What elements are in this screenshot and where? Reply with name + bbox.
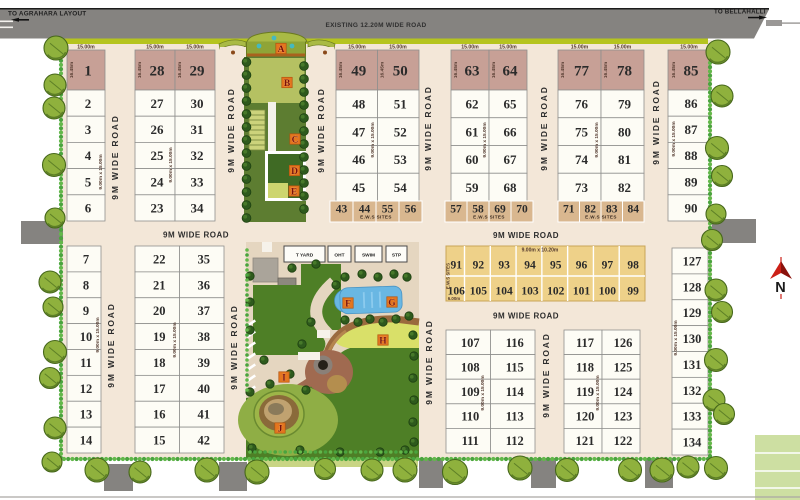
svg-text:38: 38: [198, 330, 211, 344]
svg-text:119: 119: [576, 385, 594, 399]
svg-text:16.45m: 16.45m: [69, 62, 75, 78]
svg-text:9M WIDE ROAD: 9M WIDE ROAD: [229, 304, 239, 389]
svg-text:102: 102: [547, 286, 565, 298]
svg-text:9M WIDE ROAD: 9M WIDE ROAD: [424, 319, 434, 404]
svg-text:96: 96: [576, 260, 588, 272]
svg-text:35: 35: [198, 252, 211, 266]
svg-text:9.00m x 15.00m: 9.00m x 15.00m: [98, 154, 104, 189]
svg-text:39: 39: [198, 356, 211, 370]
svg-text:128: 128: [683, 280, 702, 294]
svg-text:36: 36: [198, 278, 211, 292]
svg-text:17: 17: [153, 382, 166, 396]
svg-text:15.00m: 15.00m: [186, 45, 204, 51]
svg-text:94: 94: [524, 260, 536, 272]
svg-text:9M WIDE ROAD: 9M WIDE ROAD: [423, 85, 433, 170]
svg-text:STP: STP: [392, 253, 402, 259]
svg-text:H: H: [379, 336, 387, 346]
svg-text:F: F: [345, 299, 351, 309]
svg-text:29: 29: [190, 63, 205, 79]
svg-text:9M WIDE ROAD: 9M WIDE ROAD: [106, 302, 116, 387]
svg-text:85: 85: [684, 63, 699, 79]
svg-text:123: 123: [614, 410, 633, 424]
svg-text:97: 97: [602, 260, 614, 272]
svg-text:9M WIDE ROAD: 9M WIDE ROAD: [493, 231, 559, 240]
svg-text:A: A: [278, 45, 285, 55]
svg-text:86: 86: [685, 96, 699, 111]
svg-text:15.00m: 15.00m: [571, 45, 589, 51]
svg-text:9.00m x 10.20m: 9.00m x 10.20m: [522, 248, 559, 254]
svg-text:20: 20: [153, 304, 166, 318]
svg-text:103: 103: [521, 286, 539, 298]
svg-text:117: 117: [576, 336, 594, 350]
svg-text:28: 28: [150, 63, 165, 79]
svg-text:TO BELLAHALLI: TO BELLAHALLI: [714, 9, 766, 16]
svg-text:127: 127: [683, 254, 702, 268]
svg-text:115: 115: [506, 360, 524, 374]
svg-text:43: 43: [336, 204, 348, 216]
svg-text:7: 7: [83, 252, 89, 266]
svg-text:64: 64: [503, 63, 519, 79]
svg-text:9M WIDE ROAD: 9M WIDE ROAD: [493, 312, 559, 321]
svg-text:26: 26: [151, 122, 165, 137]
svg-text:130: 130: [683, 332, 702, 346]
svg-text:9M WIDE ROAD: 9M WIDE ROAD: [541, 332, 551, 417]
svg-text:24: 24: [151, 174, 165, 189]
svg-text:16.45m: 16.45m: [177, 62, 183, 78]
svg-text:B: B: [284, 79, 291, 89]
svg-text:1: 1: [84, 63, 92, 79]
svg-text:15.00m: 15.00m: [614, 45, 632, 51]
svg-text:16.45m: 16.45m: [380, 62, 386, 78]
svg-text:15.00m: 15.00m: [389, 45, 407, 51]
svg-text:120: 120: [576, 410, 595, 424]
svg-text:89: 89: [685, 174, 699, 189]
svg-text:121: 121: [576, 434, 595, 448]
svg-text:18: 18: [153, 356, 166, 370]
svg-text:9M WIDE ROAD: 9M WIDE ROAD: [163, 231, 229, 240]
svg-text:23: 23: [151, 201, 165, 216]
svg-text:99: 99: [627, 286, 639, 298]
svg-text:71: 71: [563, 204, 575, 216]
svg-text:122: 122: [614, 434, 633, 448]
svg-text:D: D: [291, 167, 298, 177]
svg-text:109: 109: [461, 385, 480, 399]
svg-text:63: 63: [465, 63, 480, 79]
svg-text:133: 133: [683, 410, 702, 424]
svg-text:129: 129: [683, 306, 702, 320]
svg-text:25: 25: [151, 148, 165, 163]
svg-text:6.00m: 6.00m: [448, 296, 461, 301]
svg-text:9M WIDE ROAD: 9M WIDE ROAD: [110, 114, 120, 199]
svg-text:9.00m x 15.00m: 9.00m x 15.00m: [480, 375, 486, 410]
svg-text:9M WIDE ROAD: 9M WIDE ROAD: [539, 85, 549, 170]
svg-text:48: 48: [352, 97, 366, 112]
svg-text:OHT: OHT: [334, 253, 344, 259]
svg-text:46: 46: [352, 152, 366, 167]
svg-text:C: C: [292, 135, 299, 145]
svg-text:113: 113: [506, 410, 524, 424]
svg-text:78: 78: [617, 63, 632, 79]
svg-text:16: 16: [153, 408, 166, 422]
svg-text:9.00m x 15.00m: 9.00m x 15.00m: [482, 122, 488, 157]
svg-text:9.00m x 15.00m: 9.00m x 15.00m: [172, 322, 178, 357]
svg-text:76: 76: [575, 97, 589, 112]
svg-text:16.45m: 16.45m: [491, 62, 497, 78]
svg-text:101: 101: [573, 286, 591, 298]
svg-text:57: 57: [450, 204, 462, 216]
svg-text:16.45m: 16.45m: [338, 62, 344, 78]
svg-text:9.00m x 15.00m: 9.00m x 15.00m: [95, 317, 101, 352]
svg-text:112: 112: [506, 434, 524, 448]
svg-text:74: 74: [575, 152, 589, 167]
svg-text:31: 31: [191, 122, 204, 137]
svg-text:19: 19: [153, 330, 166, 344]
svg-text:5: 5: [85, 174, 92, 189]
svg-text:79: 79: [618, 97, 632, 112]
svg-text:16.45m: 16.45m: [453, 62, 459, 78]
svg-text:111: 111: [462, 434, 479, 448]
svg-text:9M WIDE ROAD: 9M WIDE ROAD: [226, 87, 236, 172]
svg-text:107: 107: [461, 336, 480, 350]
svg-text:59: 59: [466, 180, 480, 195]
svg-text:67: 67: [504, 152, 518, 167]
svg-text:J: J: [278, 424, 283, 434]
svg-text:TO AGRAHARA LAYOUT: TO AGRAHARA LAYOUT: [8, 11, 86, 18]
svg-text:9.00m x 15.00m: 9.00m x 15.00m: [671, 121, 677, 156]
svg-text:13: 13: [80, 408, 93, 422]
svg-text:3: 3: [85, 122, 92, 137]
svg-text:45: 45: [352, 180, 366, 195]
svg-text:E.W.S SITES: E.W.S SITES: [446, 263, 451, 289]
svg-text:95: 95: [550, 260, 562, 272]
svg-text:27: 27: [151, 96, 165, 111]
svg-text:54: 54: [394, 180, 408, 195]
svg-text:16.45m: 16.45m: [671, 62, 677, 78]
svg-text:93: 93: [498, 260, 510, 272]
svg-text:53: 53: [394, 152, 408, 167]
svg-text:9M WIDE ROAD: 9M WIDE ROAD: [651, 79, 661, 164]
svg-text:16.45m: 16.45m: [137, 62, 143, 78]
svg-text:30: 30: [191, 96, 204, 111]
svg-text:47: 47: [352, 124, 366, 139]
svg-text:15.00m: 15.00m: [680, 45, 698, 51]
svg-text:E.W.S SITES: E.W.S SITES: [360, 215, 392, 220]
svg-text:9.00m x 15.00m: 9.00m x 15.00m: [673, 320, 679, 355]
svg-text:126: 126: [614, 336, 633, 350]
svg-text:9.00m x 15.00m: 9.00m x 15.00m: [595, 375, 601, 410]
svg-text:16.45m: 16.45m: [560, 62, 566, 78]
svg-text:73: 73: [575, 180, 589, 195]
svg-text:105: 105: [470, 286, 488, 298]
svg-text:9M WIDE ROAD: 9M WIDE ROAD: [316, 87, 326, 172]
svg-text:50: 50: [393, 63, 408, 79]
svg-text:10: 10: [80, 330, 93, 344]
svg-text:8: 8: [83, 278, 89, 292]
svg-text:118: 118: [576, 360, 594, 374]
svg-text:62: 62: [466, 97, 479, 112]
svg-text:15: 15: [153, 434, 166, 448]
svg-text:81: 81: [618, 152, 631, 167]
svg-text:34: 34: [191, 201, 205, 216]
svg-text:12: 12: [80, 382, 93, 396]
svg-text:I: I: [282, 373, 286, 383]
svg-text:60: 60: [466, 152, 479, 167]
svg-text:87: 87: [685, 122, 699, 137]
svg-text:E.W.S SITES: E.W.S SITES: [585, 215, 617, 220]
svg-text:E.W.S SITES: E.W.S SITES: [473, 215, 505, 220]
svg-text:49: 49: [351, 63, 366, 79]
svg-text:68: 68: [504, 180, 518, 195]
svg-text:EXISTING 12.20M WIDE ROAD: EXISTING 12.20M WIDE ROAD: [325, 22, 426, 29]
svg-text:84: 84: [628, 204, 640, 216]
svg-text:52: 52: [394, 124, 407, 139]
svg-text:32: 32: [191, 148, 204, 163]
svg-text:41: 41: [198, 408, 211, 422]
svg-text:11: 11: [80, 356, 92, 370]
svg-text:T YARD: T YARD: [296, 253, 314, 259]
svg-text:51: 51: [394, 97, 407, 112]
svg-text:22: 22: [153, 252, 166, 266]
svg-text:2: 2: [85, 96, 92, 111]
svg-text:15.00m: 15.00m: [77, 45, 95, 51]
svg-text:132: 132: [683, 384, 702, 398]
svg-text:21: 21: [153, 278, 166, 292]
svg-text:124: 124: [614, 385, 634, 399]
svg-text:SWIM: SWIM: [362, 253, 375, 259]
svg-text:40: 40: [198, 382, 211, 396]
svg-text:9: 9: [83, 304, 89, 318]
svg-text:37: 37: [198, 304, 211, 318]
svg-text:65: 65: [504, 97, 518, 112]
svg-text:42: 42: [198, 434, 211, 448]
svg-text:100: 100: [599, 286, 617, 298]
svg-text:70: 70: [516, 204, 528, 216]
svg-text:9.00m x 15.00m: 9.00m x 15.00m: [594, 122, 600, 157]
svg-text:131: 131: [683, 358, 702, 372]
svg-text:14: 14: [80, 434, 93, 448]
svg-text:88: 88: [685, 148, 699, 163]
svg-text:114: 114: [506, 385, 525, 399]
svg-text:98: 98: [627, 260, 639, 272]
svg-text:66: 66: [504, 124, 518, 139]
svg-text:4: 4: [85, 148, 92, 163]
svg-text:80: 80: [618, 124, 631, 139]
svg-text:90: 90: [685, 201, 698, 216]
svg-text:33: 33: [191, 174, 205, 189]
svg-text:61: 61: [466, 124, 479, 139]
svg-text:108: 108: [461, 360, 480, 374]
svg-text:91: 91: [451, 260, 463, 272]
svg-text:15.00m: 15.00m: [461, 45, 479, 51]
svg-text:110: 110: [461, 410, 479, 424]
svg-text:N: N: [775, 280, 785, 296]
svg-text:16.45m: 16.45m: [603, 62, 609, 78]
svg-text:6: 6: [85, 201, 92, 216]
svg-text:125: 125: [614, 360, 633, 374]
svg-text:134: 134: [683, 436, 703, 450]
svg-text:56: 56: [405, 204, 417, 216]
svg-text:82: 82: [618, 180, 631, 195]
svg-text:104: 104: [496, 286, 514, 298]
svg-text:15.00m: 15.00m: [146, 45, 164, 51]
svg-text:77: 77: [574, 63, 590, 79]
svg-text:G: G: [388, 298, 396, 308]
svg-text:9.00m x 15.00m: 9.00m x 15.00m: [168, 147, 174, 182]
svg-text:15.00m: 15.00m: [348, 45, 366, 51]
svg-text:E: E: [291, 187, 297, 197]
svg-text:75: 75: [575, 124, 589, 139]
svg-text:116: 116: [506, 336, 524, 350]
svg-text:92: 92: [473, 260, 485, 272]
svg-text:15.00m: 15.00m: [499, 45, 517, 51]
svg-text:9.00m x 15.00m: 9.00m x 15.00m: [370, 122, 376, 157]
